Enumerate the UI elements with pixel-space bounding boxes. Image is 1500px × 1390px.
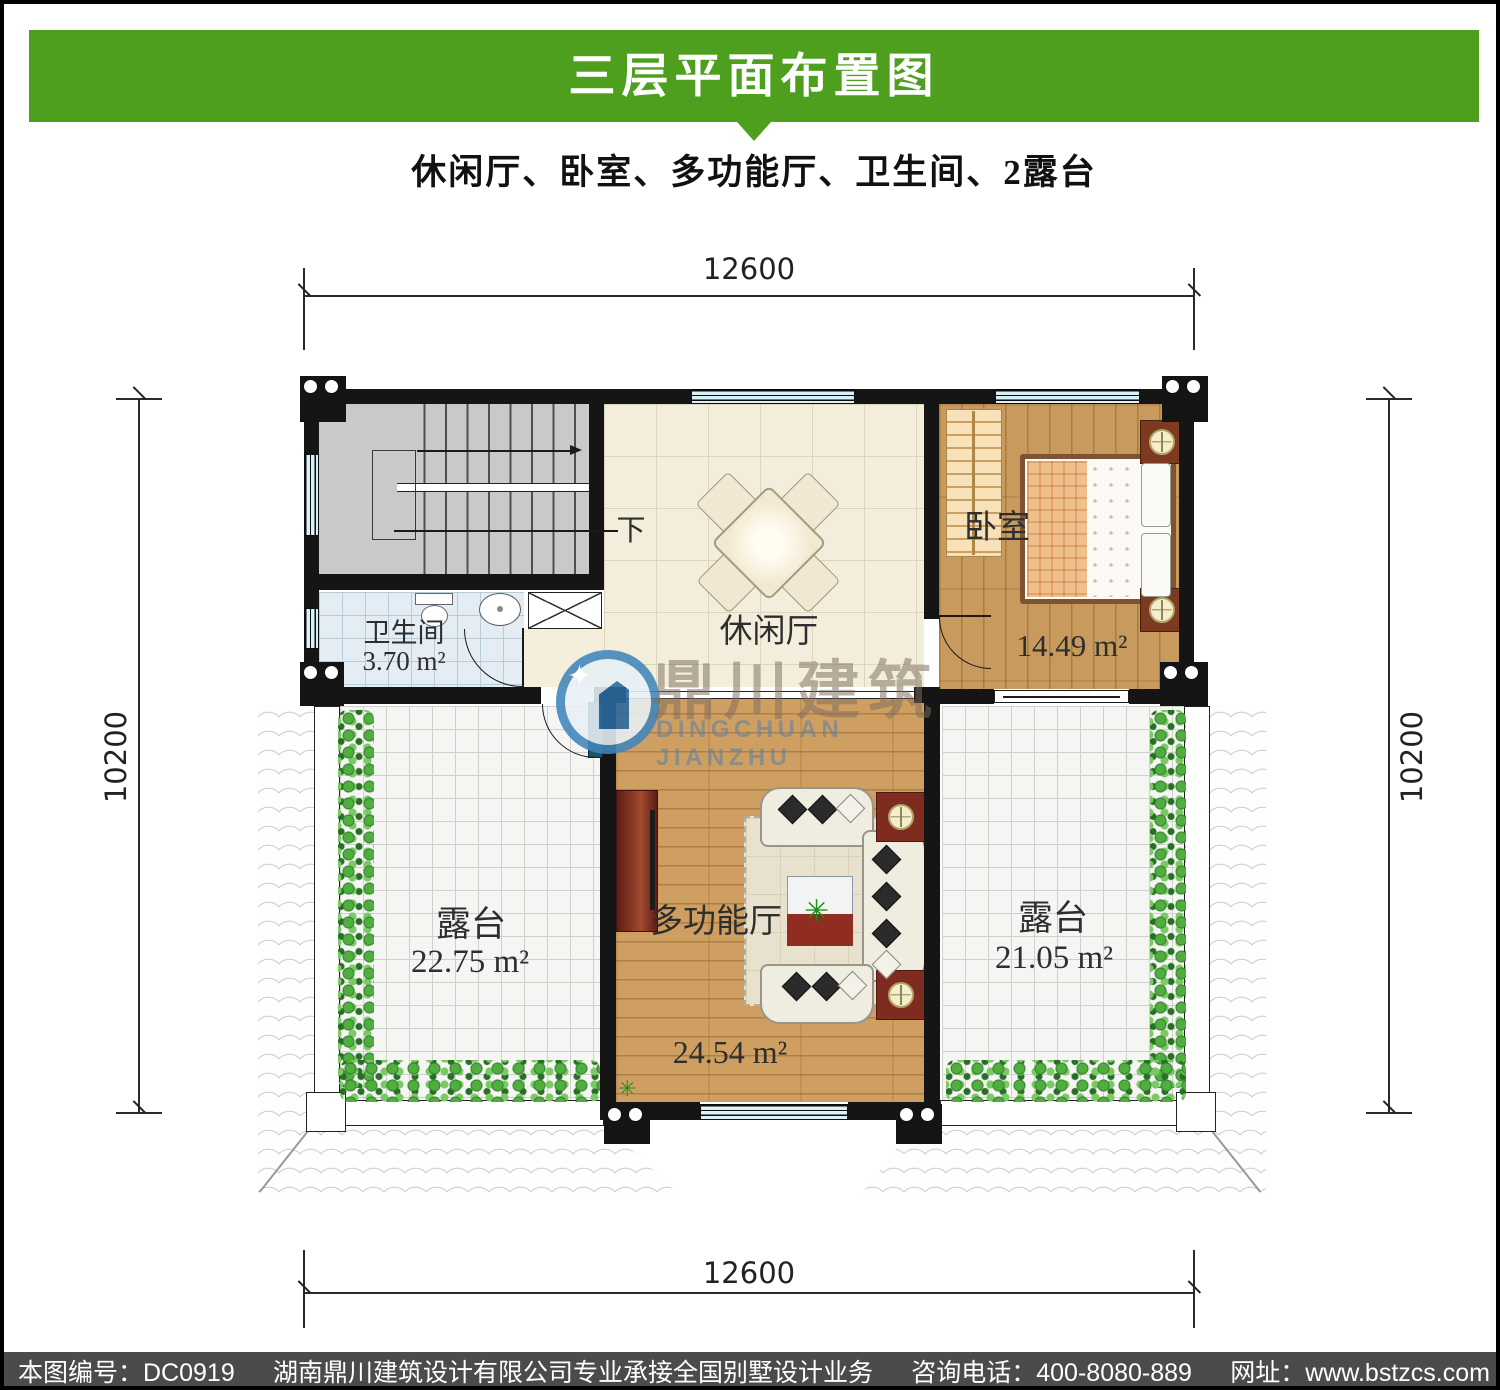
footer-company: 湖南鼎川建筑设计有限公司专业承接全国别墅设计业务 — [273, 1353, 873, 1389]
footer-bar: 本图编号：DC0919 湖南鼎川建筑设计有限公司专业承接全国别墅设计业务 咨询电… — [4, 1352, 1500, 1390]
dimension-top-label: 12600 — [574, 252, 924, 286]
stair-down-label: 下 — [610, 507, 652, 549]
wall-segment — [589, 404, 604, 576]
lamp-icon — [888, 804, 914, 830]
footer-phone: 咨询电话：400-8080-889 — [911, 1353, 1192, 1389]
stair-well-outline — [372, 450, 416, 540]
footer-website: 网址：www.bstzcs.com — [1230, 1353, 1490, 1389]
hedge-plants — [1150, 710, 1186, 1088]
terrace-right-area-label: 21.05 m² — [974, 940, 1134, 977]
page-title: 三层平面布置图 — [29, 30, 1479, 122]
bedroom-label: 卧室 — [947, 500, 1047, 548]
stair-down-leader-line — [394, 530, 618, 532]
lamp-icon — [1149, 429, 1175, 455]
wall-segment — [940, 689, 994, 704]
window — [691, 389, 855, 404]
railing-post — [306, 1092, 346, 1132]
hedge-plants — [340, 1060, 600, 1102]
wall-segment — [1179, 389, 1194, 704]
bed-duvet — [1087, 461, 1139, 597]
window — [304, 608, 319, 649]
column-symbol — [604, 1104, 650, 1144]
terrace-left-railing-bottom — [314, 1100, 604, 1126]
multi-hall-label: 多功能厅 — [626, 894, 806, 942]
corridor-nook-floor — [524, 629, 604, 687]
window — [304, 454, 319, 536]
terrace-right-label: 露台 — [993, 890, 1113, 941]
bedroom-area-label: 14.49 m² — [992, 628, 1152, 664]
pillow — [1141, 463, 1171, 527]
eave-right — [1210, 704, 1266, 1194]
leisure-hall-label: 休闲厅 — [689, 604, 849, 652]
column-symbol — [1160, 662, 1208, 706]
bathroom-label: 卫生间 — [334, 611, 474, 650]
stair-rail-divider — [397, 483, 591, 492]
dimension-right-label: 10200 — [1395, 697, 1429, 817]
terrace-right-railing — [1184, 706, 1210, 1126]
terrace-door-opening — [541, 687, 594, 704]
terrace-left-railing — [314, 706, 340, 1126]
column-symbol — [300, 376, 346, 422]
terrace-right-railing-bottom — [940, 1100, 1210, 1126]
window — [995, 389, 1140, 404]
multi-hall-area-label: 24.54 m² — [650, 1034, 810, 1071]
hedge-plants — [338, 710, 374, 1088]
toilet-tank — [415, 593, 453, 605]
wall-segment — [924, 694, 940, 1120]
stair-arrow-icon — [570, 445, 582, 455]
footer-drawing-id: 本图编号：DC0919 — [18, 1353, 235, 1389]
pillow — [1141, 533, 1171, 597]
lamp-icon — [1149, 597, 1175, 623]
wall-segment — [924, 404, 939, 619]
wall-segment — [304, 389, 319, 704]
dimension-left-label: 10200 — [99, 697, 133, 817]
duct-shaft — [528, 592, 602, 629]
plant-icon: ✳ — [804, 894, 829, 929]
stair-direction-line — [417, 450, 575, 452]
window — [700, 1104, 848, 1120]
header-banner: 三层平面布置图 — [29, 30, 1479, 122]
wall-opening-threshold — [626, 691, 914, 699]
page-subtitle: 休闲厅、卧室、多功能厅、卫生间、2露台 — [4, 144, 1500, 195]
wall-segment — [304, 574, 604, 590]
sliding-door — [994, 690, 1129, 703]
bathroom-door-leaf — [522, 628, 524, 687]
terrace-left-area-label: 22.75 m² — [390, 944, 550, 981]
dimension-bottom-label: 12600 — [574, 1256, 924, 1290]
bathroom-area-label: 3.70 m² — [336, 646, 472, 677]
lamp-icon — [888, 982, 914, 1008]
hedge-plants — [946, 1060, 1186, 1102]
column-symbol — [1162, 376, 1208, 422]
terrace-left-label: 露台 — [411, 896, 531, 947]
column-symbol — [896, 1104, 942, 1144]
banner-pointer-icon — [737, 122, 771, 141]
floor-plan-poster: 三层平面布置图 休闲厅、卧室、多功能厅、卫生间、2露台 12600 12600 … — [0, 0, 1500, 1390]
plant-icon: ✳ — [618, 1076, 636, 1102]
sink-drain-icon — [497, 606, 503, 612]
